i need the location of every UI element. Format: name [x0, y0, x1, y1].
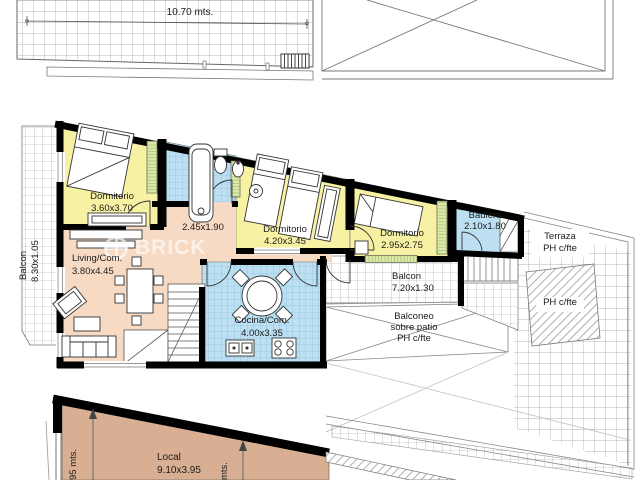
- cocina-label: Cocina/Com. 4.00x3.35: [212, 314, 312, 340]
- cocina-size: 4.00x3.35: [212, 327, 312, 340]
- ph-area-label: PH c/fte: [533, 297, 587, 309]
- dormitorio-3-name: Dormitorio: [352, 228, 452, 240]
- dormitorio-1-label: Dormitorio 3.60x3.70: [62, 191, 162, 215]
- balcon-right-size: 7.20x1.30: [392, 283, 454, 295]
- balconeo-line2: sobre patio: [383, 322, 445, 333]
- balconeo-line3: PH c/fte: [383, 333, 445, 344]
- rug: [74, 317, 100, 331]
- bed-dormitorio-1: [67, 123, 134, 197]
- local-dim-left: 95 mts.: [68, 449, 79, 480]
- dormitorio-3-size: 2.95x2.75: [352, 240, 452, 252]
- balconeo-label: Balconeo sobre patio PH c/fte: [383, 311, 445, 344]
- kitchen-stove: [272, 338, 296, 358]
- local-name: Local: [157, 451, 201, 464]
- baulera-name: Baulera: [456, 210, 514, 221]
- dormitorio-1-size: 3.60x3.70: [62, 203, 162, 215]
- terraza-line1: Terraza: [531, 231, 589, 243]
- local-dim-mid: mts.: [219, 462, 230, 480]
- floorplan-page: BRICK 10.70 mts. Dormitorio 3.60x3.70 2.…: [0, 0, 640, 480]
- roof-dimension-label: 10.70 mts.: [148, 7, 232, 19]
- local-label: Local 9.10x3.95: [157, 451, 201, 477]
- balconeo-line1: Balconeo: [383, 311, 445, 322]
- local-size: 9.10x3.95: [157, 464, 201, 477]
- balcon-right-name: Balcon: [392, 271, 454, 283]
- dormitorio-2-name: Dormitorio: [235, 224, 335, 236]
- sideboard: [70, 230, 142, 248]
- terraza-label: Terraza PH c/fte: [531, 231, 589, 255]
- kitchen-sink: [226, 340, 254, 356]
- living-label: Living/Com. 3.80x4.45: [72, 252, 162, 278]
- balcon-left-name: Balcon: [18, 251, 29, 280]
- baulera-label: Baulera 2.10x1.80: [456, 210, 514, 232]
- living-size: 3.80x4.45: [72, 265, 162, 278]
- balcon-left-size: 8.30x1.05: [30, 240, 41, 282]
- bath-sink: [250, 185, 263, 198]
- balcony-left-strip: [22, 126, 57, 345]
- bathtub: [189, 144, 213, 222]
- hall-size-label: 2.45x1.90: [168, 222, 238, 234]
- terraza-line2: PH c/fte: [531, 243, 589, 255]
- dormitorio-1-name: Dormitorio: [62, 191, 162, 203]
- dormitorio-2-size: 4.20x3.45: [235, 236, 335, 248]
- balcon-right-label: Balcon 7.20x1.30: [392, 271, 454, 295]
- bidet: [233, 161, 244, 177]
- living-name: Living/Com.: [72, 252, 162, 265]
- toilet: [214, 149, 227, 174]
- cocina-name: Cocina/Com.: [212, 314, 312, 327]
- baulera-size: 2.10x1.80: [456, 221, 514, 232]
- dormitorio-3-label: Dormitorio 2.95x2.75: [352, 228, 452, 252]
- sofa: [62, 336, 116, 357]
- dormitorio-2-label: Dormitorio 4.20x3.45: [235, 224, 335, 248]
